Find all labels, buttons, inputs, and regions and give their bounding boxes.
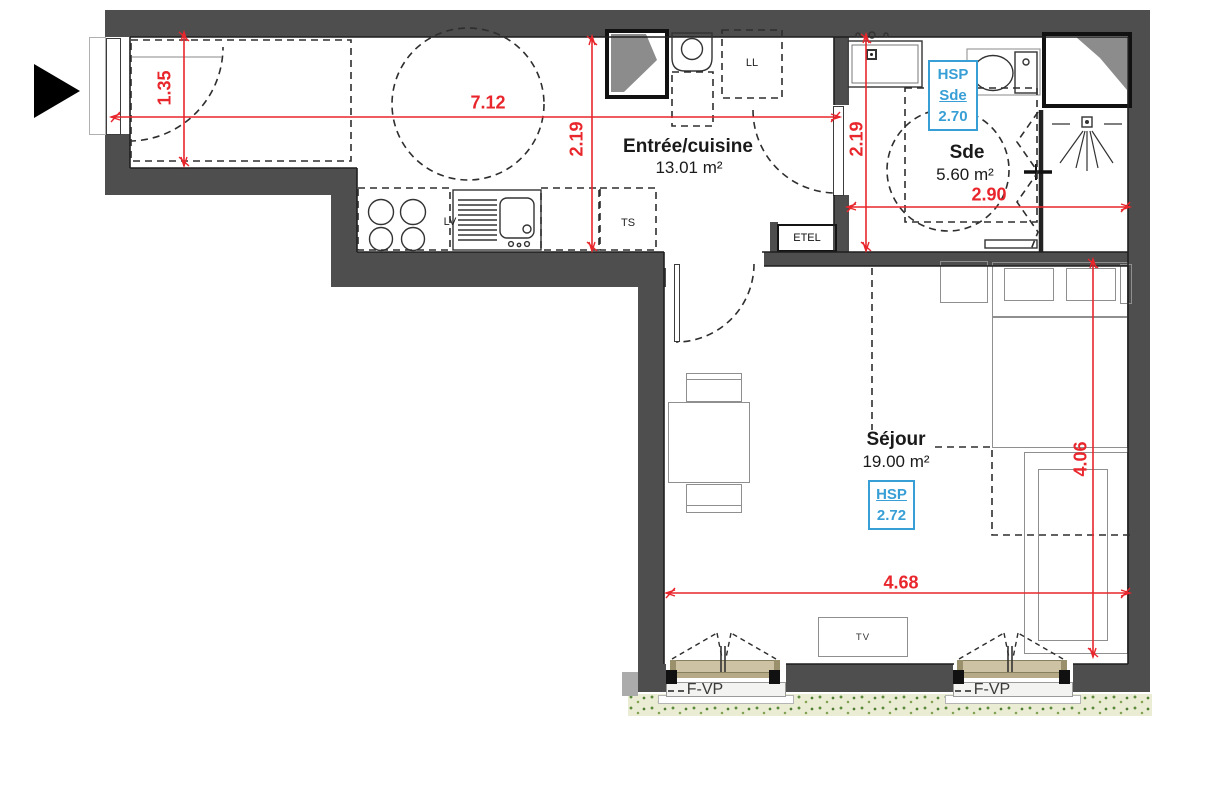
dishwasher-label: LV — [444, 216, 457, 228]
cooktop-burner — [402, 228, 425, 251]
window2-jamb-left — [953, 670, 964, 684]
toilet-tank — [1015, 52, 1037, 93]
chair-bottom-line — [686, 505, 742, 506]
wall-sejour-left — [638, 252, 664, 692]
shower-spray-lines — [1060, 131, 1113, 171]
window2-label-dash — [955, 690, 971, 692]
dim-text-1-35: 1.35 — [155, 70, 176, 105]
window2-label: F-VP — [974, 681, 1010, 699]
entrance-arrow-icon — [34, 64, 80, 118]
dim-text-4-06: 4.06 — [1071, 441, 1092, 476]
washbasin-inner — [852, 45, 918, 83]
washing-machine-label: LL — [746, 57, 758, 69]
sejour-door-leaf — [674, 264, 680, 342]
toilet-button — [1023, 59, 1029, 65]
sink-tap-dot — [517, 243, 520, 246]
washbasin — [848, 41, 922, 87]
sink-drain — [523, 225, 531, 233]
chair-top-line — [686, 379, 742, 380]
tv-label: TV — [856, 632, 870, 643]
outer-wall-trim — [622, 672, 638, 696]
etel-label: ETEL — [793, 232, 821, 244]
dishwasher-lines — [458, 200, 497, 240]
cooktop-burner — [370, 228, 393, 251]
dim-text-2-19-left: 2.19 — [567, 121, 588, 156]
entrance-door-leaf — [106, 38, 121, 135]
dim-text-4-68: 4.68 — [883, 573, 918, 594]
nightstand-right — [1120, 264, 1132, 304]
dining-table — [668, 402, 750, 483]
kitchen-sink — [500, 198, 534, 238]
shower-head-icon — [1082, 117, 1092, 127]
room-area-sejour: 19.00 m² — [862, 452, 929, 472]
window1-frame — [670, 660, 780, 673]
window1-frame-strip — [670, 673, 780, 678]
door-swing-sde — [753, 110, 836, 193]
sink-tap-dot — [525, 242, 530, 247]
basin-clearance — [672, 72, 713, 126]
door-swing-sejour — [676, 264, 754, 342]
window2-sill — [953, 682, 1073, 697]
hsp-sejour-label: HSP — [873, 484, 910, 505]
hsp-sde-room: Sde — [933, 85, 973, 106]
door-swing-entrance — [129, 47, 223, 141]
hand-basin — [672, 33, 712, 71]
floor-plan: ETEL TV — [0, 0, 1218, 800]
window1-jamb-left — [666, 670, 677, 684]
folding-shower-door — [1017, 112, 1038, 252]
wall-right — [1128, 10, 1150, 692]
duct-shaft-sde — [1042, 32, 1132, 108]
faucet-dot — [870, 53, 873, 56]
window1-sill — [666, 682, 786, 697]
chair-bottom — [686, 484, 742, 513]
turning-circle-kitchen — [392, 28, 544, 180]
entrance-threshold — [89, 37, 106, 135]
pillow-left — [1004, 268, 1054, 301]
window2-frame — [957, 660, 1067, 673]
duct-shaft-kitchen — [605, 29, 669, 99]
window2-jamb-right — [1059, 670, 1070, 684]
window1-jamb-right — [769, 670, 780, 684]
sink-tap-dot — [509, 242, 514, 247]
hsp-sde-value: 2.70 — [933, 106, 973, 127]
hand-basin-bowl — [682, 39, 703, 60]
sofa-cushion — [1038, 469, 1108, 641]
room-area-entree: 13.01 m² — [655, 158, 722, 178]
wall-left-upper — [105, 10, 130, 37]
washbasin-faucet — [867, 50, 876, 59]
chair-top — [686, 373, 742, 402]
room-area-sde: 5.60 m² — [936, 165, 994, 185]
room-label-entree: Entrée/cuisine — [623, 136, 753, 158]
dim-text-7-12: 7.12 — [470, 93, 505, 114]
window1-label: F-VP — [687, 681, 723, 699]
sde-door-leaf — [833, 106, 844, 196]
towel-radiator — [985, 240, 1037, 248]
ts-label: TS — [621, 217, 635, 229]
counter-outline-mid — [541, 188, 599, 250]
wall-kitchen-bottom — [331, 252, 666, 287]
cooktop-burner — [401, 200, 426, 225]
room-label-sejour: Séjour — [866, 429, 925, 451]
dim-text-2-19-right: 2.19 — [847, 121, 868, 156]
cooktop-burner — [369, 200, 394, 225]
toilet-bowl — [973, 56, 1013, 91]
hsp-annotation-sejour: HSP 2.72 — [868, 480, 915, 530]
pillow-right — [1066, 268, 1116, 301]
window1-label-dash — [668, 690, 684, 692]
dim-text-2-90: 2.90 — [971, 185, 1006, 206]
hsp-annotation-sde: HSP Sde 2.70 — [928, 60, 978, 131]
etel-enclosure: ETEL — [777, 224, 837, 252]
nightstand-left — [940, 261, 988, 303]
wall-corridor-bottom — [105, 168, 357, 195]
kitchen-counter — [453, 190, 541, 250]
wall-bottom-seg2 — [786, 664, 954, 692]
wall-partition-sde-upper — [834, 37, 847, 105]
bed-headboard-line — [992, 316, 1128, 318]
hsp-sejour-value: 2.72 — [873, 505, 910, 526]
shower-head-dot — [1085, 120, 1089, 124]
cooktop-counter-outline — [358, 188, 450, 250]
room-label-sde: Sde — [950, 142, 985, 164]
hsp-sde-label: HSP — [933, 64, 973, 85]
tv-stand: TV — [818, 617, 908, 657]
wall-interior-outlines — [130, 37, 1128, 664]
window2-frame-strip — [957, 673, 1067, 678]
wall-bottom-seg1 — [638, 664, 668, 692]
